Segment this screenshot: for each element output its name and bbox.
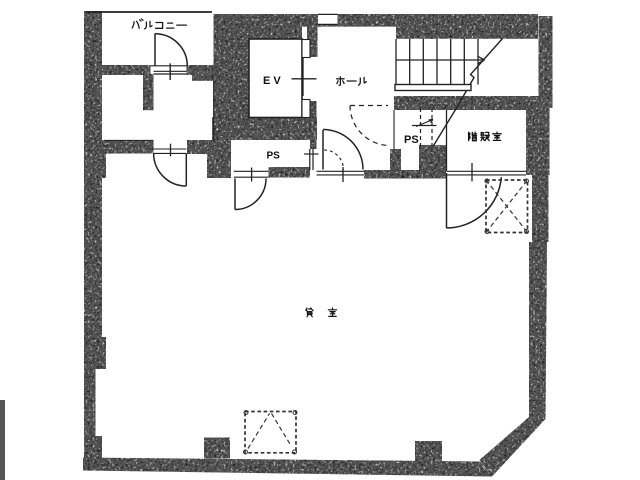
svg-text:PS: PS bbox=[267, 151, 281, 162]
svg-text:EV: EV bbox=[263, 75, 284, 87]
svg-text:PS: PS bbox=[404, 134, 419, 146]
